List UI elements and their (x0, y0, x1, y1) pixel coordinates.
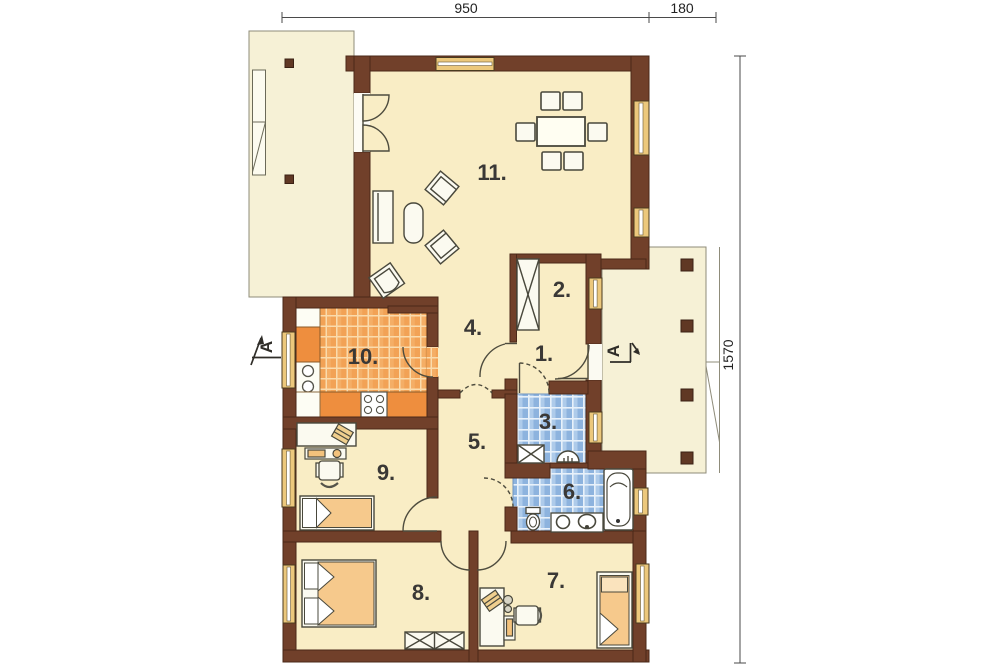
svg-text:1.: 1. (535, 341, 553, 366)
svg-text:1570: 1570 (720, 339, 736, 370)
svg-text:A: A (257, 341, 276, 353)
svg-text:5.: 5. (468, 429, 486, 454)
svg-text:950: 950 (454, 0, 478, 16)
svg-text:4.: 4. (464, 315, 482, 340)
svg-text:3.: 3. (539, 409, 557, 434)
svg-text:7.: 7. (547, 568, 565, 593)
svg-text:A: A (604, 345, 623, 357)
svg-text:10.: 10. (348, 344, 379, 369)
svg-text:8.: 8. (412, 580, 430, 605)
svg-text:2.: 2. (553, 277, 571, 302)
svg-text:180: 180 (670, 0, 694, 16)
svg-text:6.: 6. (563, 479, 581, 504)
svg-text:11.: 11. (477, 160, 506, 185)
svg-text:9.: 9. (377, 460, 395, 485)
